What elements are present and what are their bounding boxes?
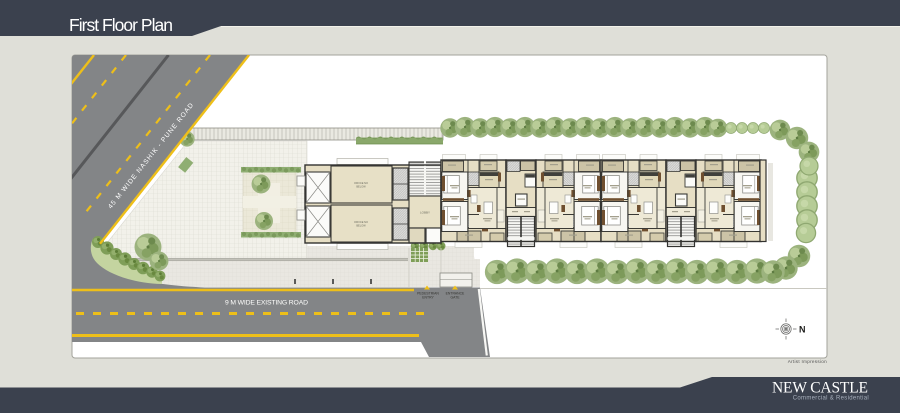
svg-text:NEW CASTLE: NEW CASTLE <box>772 380 869 397</box>
svg-text:First Floor Plan: First Floor Plan <box>69 15 173 35</box>
svg-text:Commercial & Residential: Commercial & Residential <box>793 396 869 402</box>
svg-text:N: N <box>799 325 806 335</box>
svg-text:9 M WIDE EXISTING ROAD: 9 M WIDE EXISTING ROAD <box>225 300 308 307</box>
svg-text:Artist Impression: Artist Impression <box>788 359 827 364</box>
svg-text:BELOW: BELOW <box>356 223 366 227</box>
svg-text:BELOW: BELOW <box>356 184 366 188</box>
svg-text:OFFICE NO: OFFICE NO <box>354 220 368 224</box>
svg-text:ENTRY: ENTRY <box>422 295 434 299</box>
svg-text:LOBBY: LOBBY <box>420 211 430 215</box>
svg-text:GATE: GATE <box>451 295 461 299</box>
svg-text:OFFICE NO: OFFICE NO <box>354 181 368 185</box>
